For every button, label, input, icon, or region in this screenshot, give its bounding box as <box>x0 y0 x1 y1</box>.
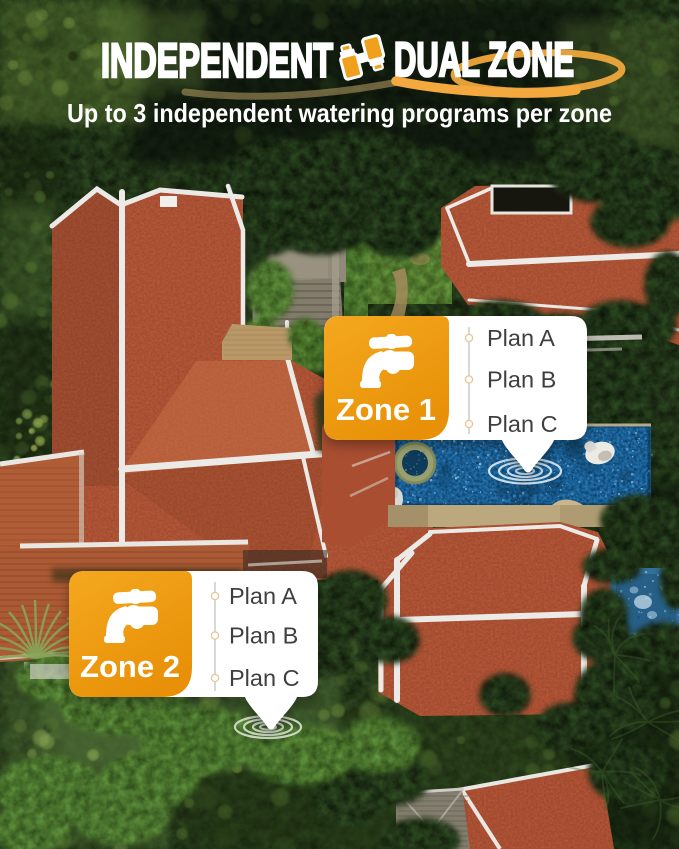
svg-text:Plan C: Plan C <box>487 411 558 437</box>
svg-text:Up to 3 independent watering p: Up to 3 independent watering programs pe… <box>67 98 612 128</box>
svg-text:Plan B: Plan B <box>487 367 556 393</box>
svg-text:Plan A: Plan A <box>487 325 555 351</box>
svg-text:Plan C: Plan C <box>229 665 300 691</box>
svg-text:Zone 2: Zone 2 <box>80 649 180 684</box>
svg-text:Plan A: Plan A <box>229 583 297 609</box>
svg-text:DUAL ZONE: DUAL ZONE <box>394 34 574 87</box>
svg-text:INDEPENDENT: INDEPENDENT <box>101 35 333 88</box>
svg-text:Zone 1: Zone 1 <box>336 392 436 427</box>
svg-text:Plan B: Plan B <box>229 623 298 649</box>
